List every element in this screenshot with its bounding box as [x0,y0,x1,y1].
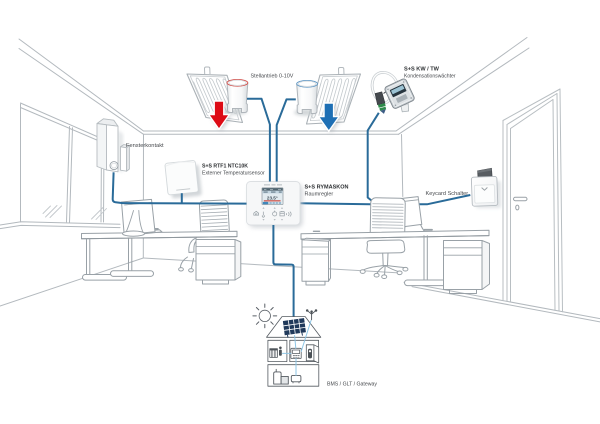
svg-text:S+S RYMASKON: S+S RYMASKON [305,184,349,190]
svg-text:S+S KW / TW: S+S KW / TW [404,67,440,73]
svg-text:Keycard Schalter: Keycard Schalter [426,191,469,197]
svg-text:BMS / GLT / Gateway: BMS / GLT / Gateway [327,381,377,387]
svg-text:Stellantrieb 0-10V: Stellantrieb 0-10V [251,73,294,79]
svg-text:Raumregler: Raumregler [305,192,334,198]
svg-text:S+S RTF1 NTC10K: S+S RTF1 NTC10K [202,163,248,169]
svg-text:Kondensationswächter: Kondensationswächter [404,74,456,80]
svg-text:Externer Temperatursensor: Externer Temperatursensor [202,171,265,177]
svg-text:Fensterkontakt: Fensterkontakt [126,143,164,149]
svg-text:23.5°: 23.5° [267,196,278,201]
